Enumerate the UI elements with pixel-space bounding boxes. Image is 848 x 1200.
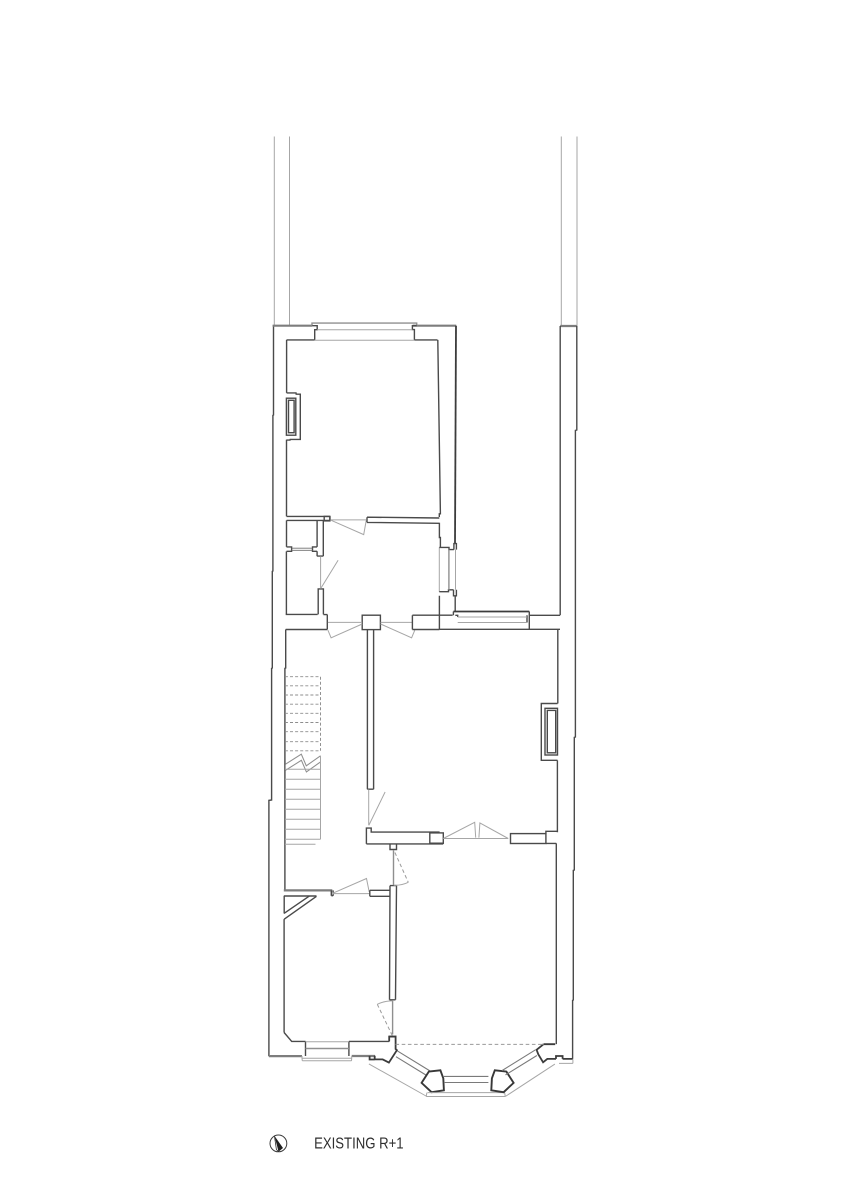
svg-text:EXISTING R+1: EXISTING R+1 xyxy=(314,1135,404,1152)
